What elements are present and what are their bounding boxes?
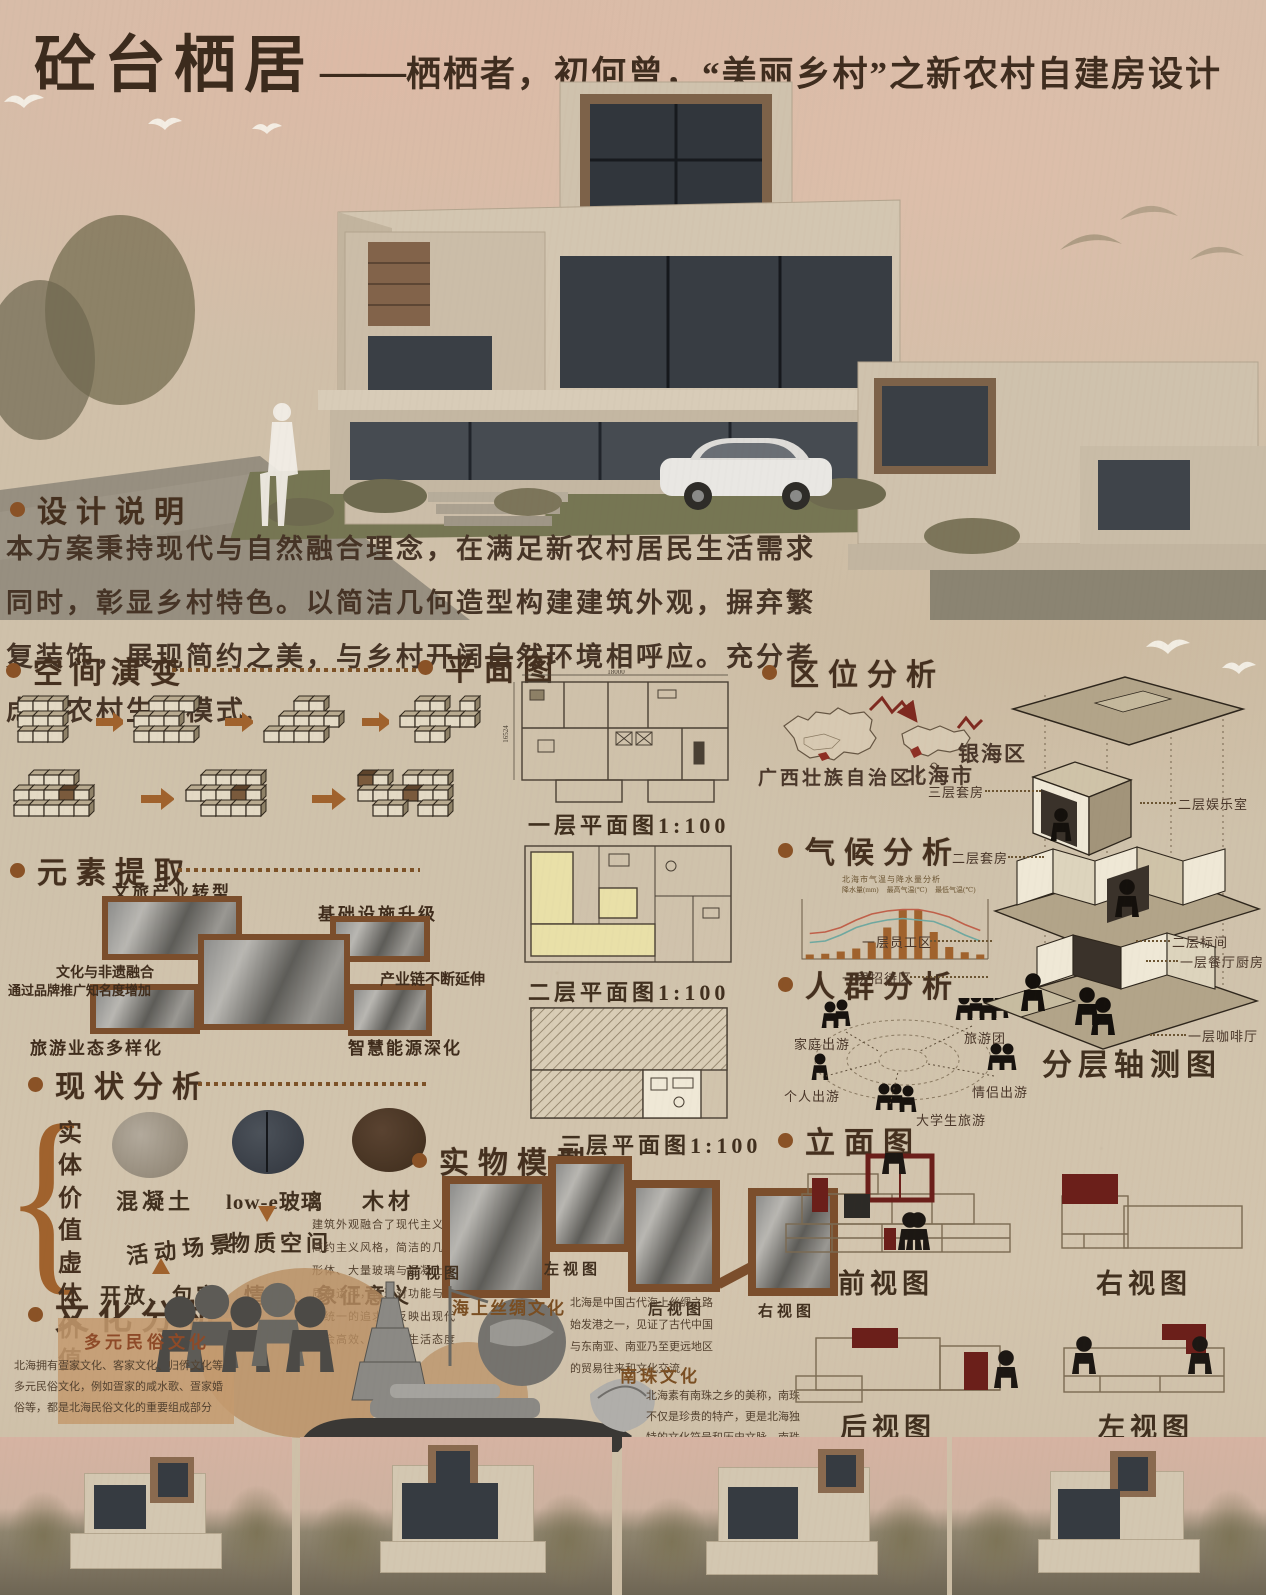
bullet-icon xyxy=(418,660,433,675)
element-label: 旅游业态多样化 xyxy=(30,1034,163,1059)
climate-chart-title: 北海市气温与降水量分析 xyxy=(842,874,941,885)
elevation-rear xyxy=(788,1322,1024,1408)
dotted-rule xyxy=(198,1082,426,1086)
section-heading: 空间演变 xyxy=(33,648,189,692)
material-swatch-concrete xyxy=(112,1112,188,1178)
leader-line xyxy=(1140,802,1176,804)
elevation-right xyxy=(1044,1162,1256,1262)
render-thumbnail-1 xyxy=(0,1437,292,1595)
svg-text:16524: 16524 xyxy=(502,725,510,743)
bullet-icon xyxy=(778,843,793,858)
collage-photo xyxy=(198,934,350,1030)
axon-label: 一层招待区 xyxy=(842,968,912,987)
culture-title: 多元民俗文化 xyxy=(84,1328,210,1353)
arrow-icon xyxy=(96,712,124,732)
material-label: 混凝土 xyxy=(116,1184,194,1216)
axon-label: 二层套房 xyxy=(952,848,1008,867)
arrow-icon xyxy=(141,788,174,810)
section-space-evolution: 空间演变 xyxy=(6,648,189,692)
people-label: 家庭出游 xyxy=(794,1034,850,1053)
floor-plan-3 xyxy=(505,998,755,1128)
section-climate: 气候分析 xyxy=(778,828,961,872)
arrow-icon xyxy=(312,788,345,810)
elevation-left xyxy=(1050,1314,1250,1404)
material-label: 木材 xyxy=(362,1184,414,1216)
render-thumbnail-3 xyxy=(622,1437,947,1595)
culture-text: 北海拥有疍家文化、客家文化、归侨文化等多元民俗文化，例如疍家的咸水歌、疍家婚俗等… xyxy=(14,1356,232,1419)
people-label: 大学生旅游 xyxy=(916,1110,986,1129)
culture-title: 南珠文化 xyxy=(620,1362,700,1387)
axon-label: 二层娱乐室 xyxy=(1178,794,1248,813)
cube-evolution-row-1 xyxy=(12,688,482,756)
leader-line xyxy=(930,940,992,942)
element-label: 通过品牌推广知名度增加 xyxy=(8,980,151,999)
render-thumbnail-4 xyxy=(952,1437,1266,1595)
leader-line xyxy=(1150,1034,1186,1036)
glass-mullion xyxy=(266,1112,268,1172)
dotted-rule xyxy=(172,668,424,672)
floor-plan-1: 18000 16524 xyxy=(498,670,754,812)
leader-line xyxy=(1146,960,1178,962)
axon-label: 三层套房 xyxy=(928,782,984,801)
axon-caption: 分层轴测图 xyxy=(1042,1040,1222,1084)
down-arrow-icon xyxy=(258,1206,276,1222)
elements-collage: 文旅产业转型 基础设施升级 文化与非遗融合 通过品牌推广知名度增加 产业链不断延… xyxy=(0,872,480,1062)
axon-label: 一层餐厅厨房 xyxy=(1180,952,1264,971)
bullet-icon xyxy=(6,663,21,678)
axon-label: 一层员工区 xyxy=(862,932,932,951)
material-swatch-glass xyxy=(232,1110,304,1174)
leader-line xyxy=(910,976,988,978)
element-label: 文化与非遗融合 xyxy=(56,962,154,982)
leader-line xyxy=(985,790,1041,792)
arrow-icon xyxy=(362,712,390,732)
collage-photo xyxy=(348,984,432,1036)
arrow-icon xyxy=(225,712,253,732)
section-heading: 气候分析 xyxy=(805,828,961,872)
people-label: 情侣出游 xyxy=(972,1082,1028,1101)
map-label: 广西壮族自治区 xyxy=(758,763,912,790)
element-label: 智慧能源深化 xyxy=(348,1034,462,1059)
elevation-label: 前视图 xyxy=(838,1262,934,1301)
up-arrow-icon xyxy=(152,1258,170,1274)
culture-title: 海上丝绸文化 xyxy=(452,1294,566,1319)
model-photo-left xyxy=(548,1156,632,1252)
bullet-icon xyxy=(10,502,25,517)
bullet-icon xyxy=(762,665,777,680)
bullet-icon xyxy=(778,977,793,992)
cube-evolution-row-2 xyxy=(8,762,488,836)
leader-line xyxy=(1008,856,1044,858)
bullet-icon xyxy=(778,1133,793,1148)
floor-plan-2 xyxy=(503,836,753,974)
solid-value-label: 实体价值 xyxy=(58,1118,92,1248)
elevation-front xyxy=(772,1152,1024,1264)
poster-board: 砼台栖居 —— 栖栖者，初何曾，“美丽乡村”之新农村自建房设计 xyxy=(0,0,1266,1595)
element-label: 产业链不断延伸 xyxy=(380,968,485,989)
activity-label: 活动场景 xyxy=(124,1225,239,1270)
bird-icon xyxy=(1146,632,1190,656)
frame-connector xyxy=(544,1204,556,1214)
elevation-label: 右视图 xyxy=(1096,1262,1192,1301)
leader-line xyxy=(1136,940,1170,942)
render-thumbnail-2 xyxy=(300,1437,612,1595)
people-label: 个人出游 xyxy=(784,1086,840,1105)
axon-label: 二层标间 xyxy=(1172,932,1228,951)
svg-text:18000: 18000 xyxy=(607,670,625,676)
